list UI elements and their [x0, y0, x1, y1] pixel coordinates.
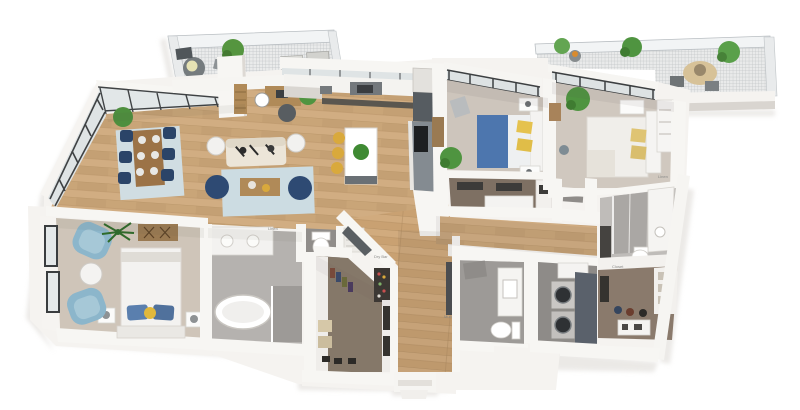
svg-text:Linen: Linen — [658, 174, 668, 179]
svg-text:Linen: Linen — [268, 226, 278, 231]
svg-text:Closet: Closet — [612, 264, 624, 269]
svg-text:Dry Bar: Dry Bar — [374, 254, 388, 259]
